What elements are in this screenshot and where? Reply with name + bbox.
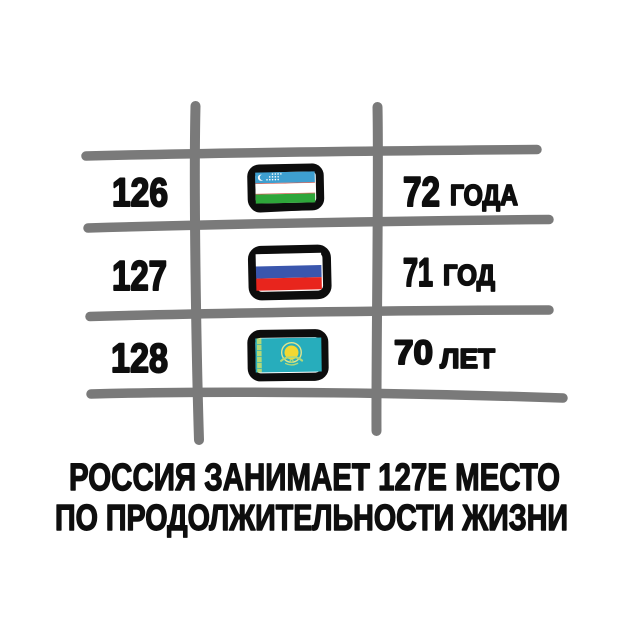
- svg-text:126: 126: [112, 171, 168, 215]
- svg-text:ГОДА: ГОДА: [450, 180, 518, 212]
- svg-text:71: 71: [403, 251, 433, 295]
- svg-text:РОССИЯ ЗАНИМАЕТ 127Е МЕСТО: РОССИЯ ЗАНИМАЕТ 127Е МЕСТО: [69, 457, 560, 499]
- svg-text:127: 127: [112, 252, 167, 299]
- svg-text:128: 128: [111, 335, 168, 381]
- svg-text:ГОД: ГОД: [443, 260, 495, 292]
- svg-text:ЛЕТ: ЛЕТ: [440, 343, 495, 374]
- svg-text:70: 70: [394, 334, 433, 372]
- svg-text:72: 72: [403, 168, 440, 215]
- svg-text:ПО ПРОДОЛЖИТЕЛЬНОСТИ ЖИЗНИ: ПО ПРОДОЛЖИТЕЛЬНОСТИ ЖИЗНИ: [55, 497, 568, 538]
